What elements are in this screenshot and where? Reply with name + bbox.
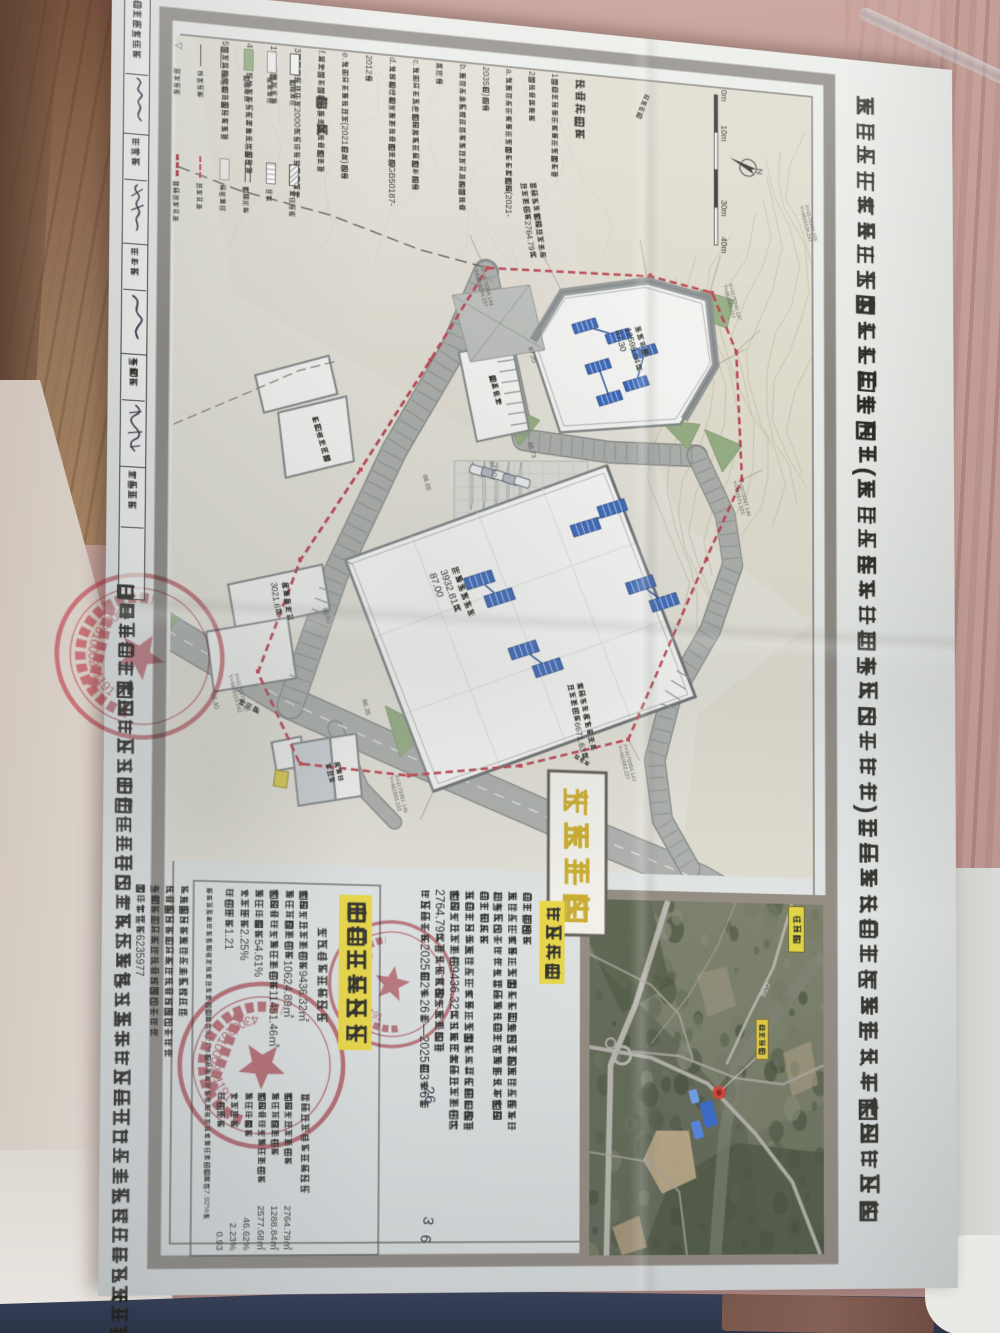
svg-text:40m: 40m xyxy=(719,237,729,254)
svg-text:N: N xyxy=(755,168,765,175)
svg-text:0m: 0m xyxy=(719,89,729,102)
svg-text:10m: 10m xyxy=(719,125,729,142)
svg-text:30m: 30m xyxy=(719,200,729,217)
